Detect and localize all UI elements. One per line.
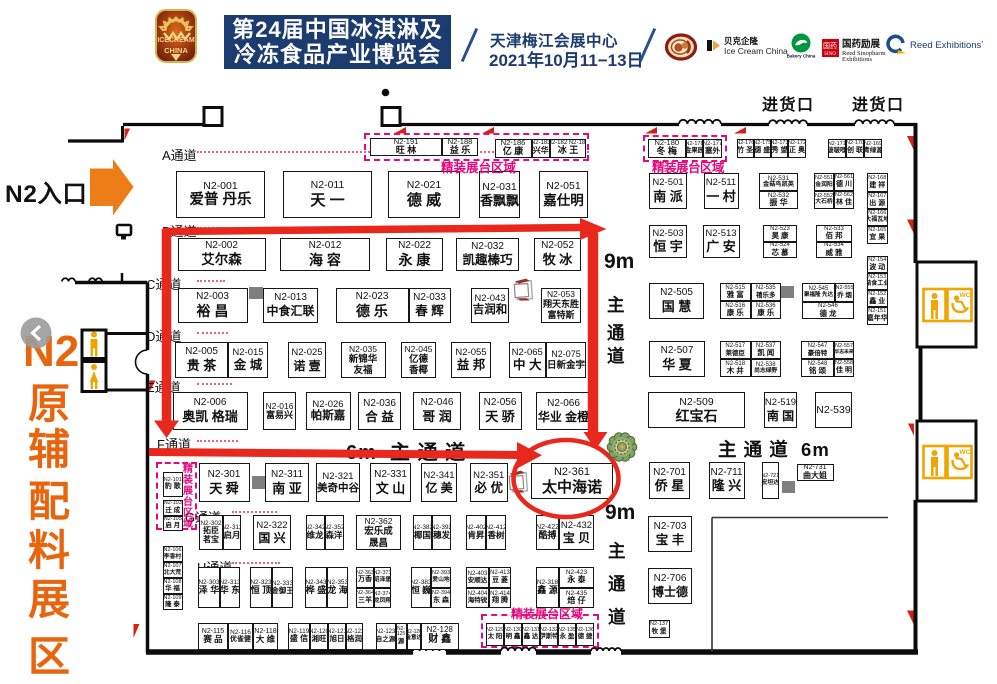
svg-text:贝克企隆: 贝克企隆 xyxy=(724,36,759,46)
svg-text:Reed Exhibitionsʼ: Reed Exhibitionsʼ xyxy=(910,40,983,51)
svg-text:Bakery China: Bakery China xyxy=(787,54,816,59)
svg-text:Exhibitions: Exhibitions xyxy=(842,56,872,63)
svg-text:CHINA: CHINA xyxy=(164,46,188,55)
svg-text:国药励展: 国药励展 xyxy=(842,38,881,50)
svg-text:ICECREAM: ICECREAM xyxy=(157,37,195,44)
svg-text:国药: 国药 xyxy=(823,41,837,50)
svg-text:SINO: SINO xyxy=(824,52,836,57)
svg-text:Ice Cream China: Ice Cream China xyxy=(724,46,788,56)
